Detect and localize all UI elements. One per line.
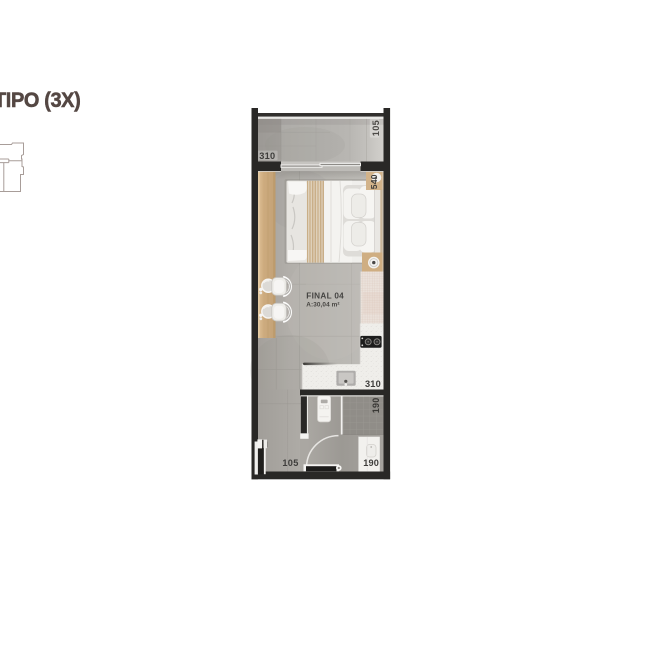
svg-text:310: 310 xyxy=(259,151,275,161)
svg-text:105: 105 xyxy=(282,458,298,468)
svg-text:A:30,04 m²: A:30,04 m² xyxy=(306,302,339,309)
svg-text:190: 190 xyxy=(363,458,379,468)
svg-text:190: 190 xyxy=(371,398,381,414)
svg-text:FINAL 04: FINAL 04 xyxy=(306,292,344,301)
svg-text:310: 310 xyxy=(365,379,381,389)
svg-text:105: 105 xyxy=(371,120,381,136)
svg-text:540: 540 xyxy=(369,174,379,189)
